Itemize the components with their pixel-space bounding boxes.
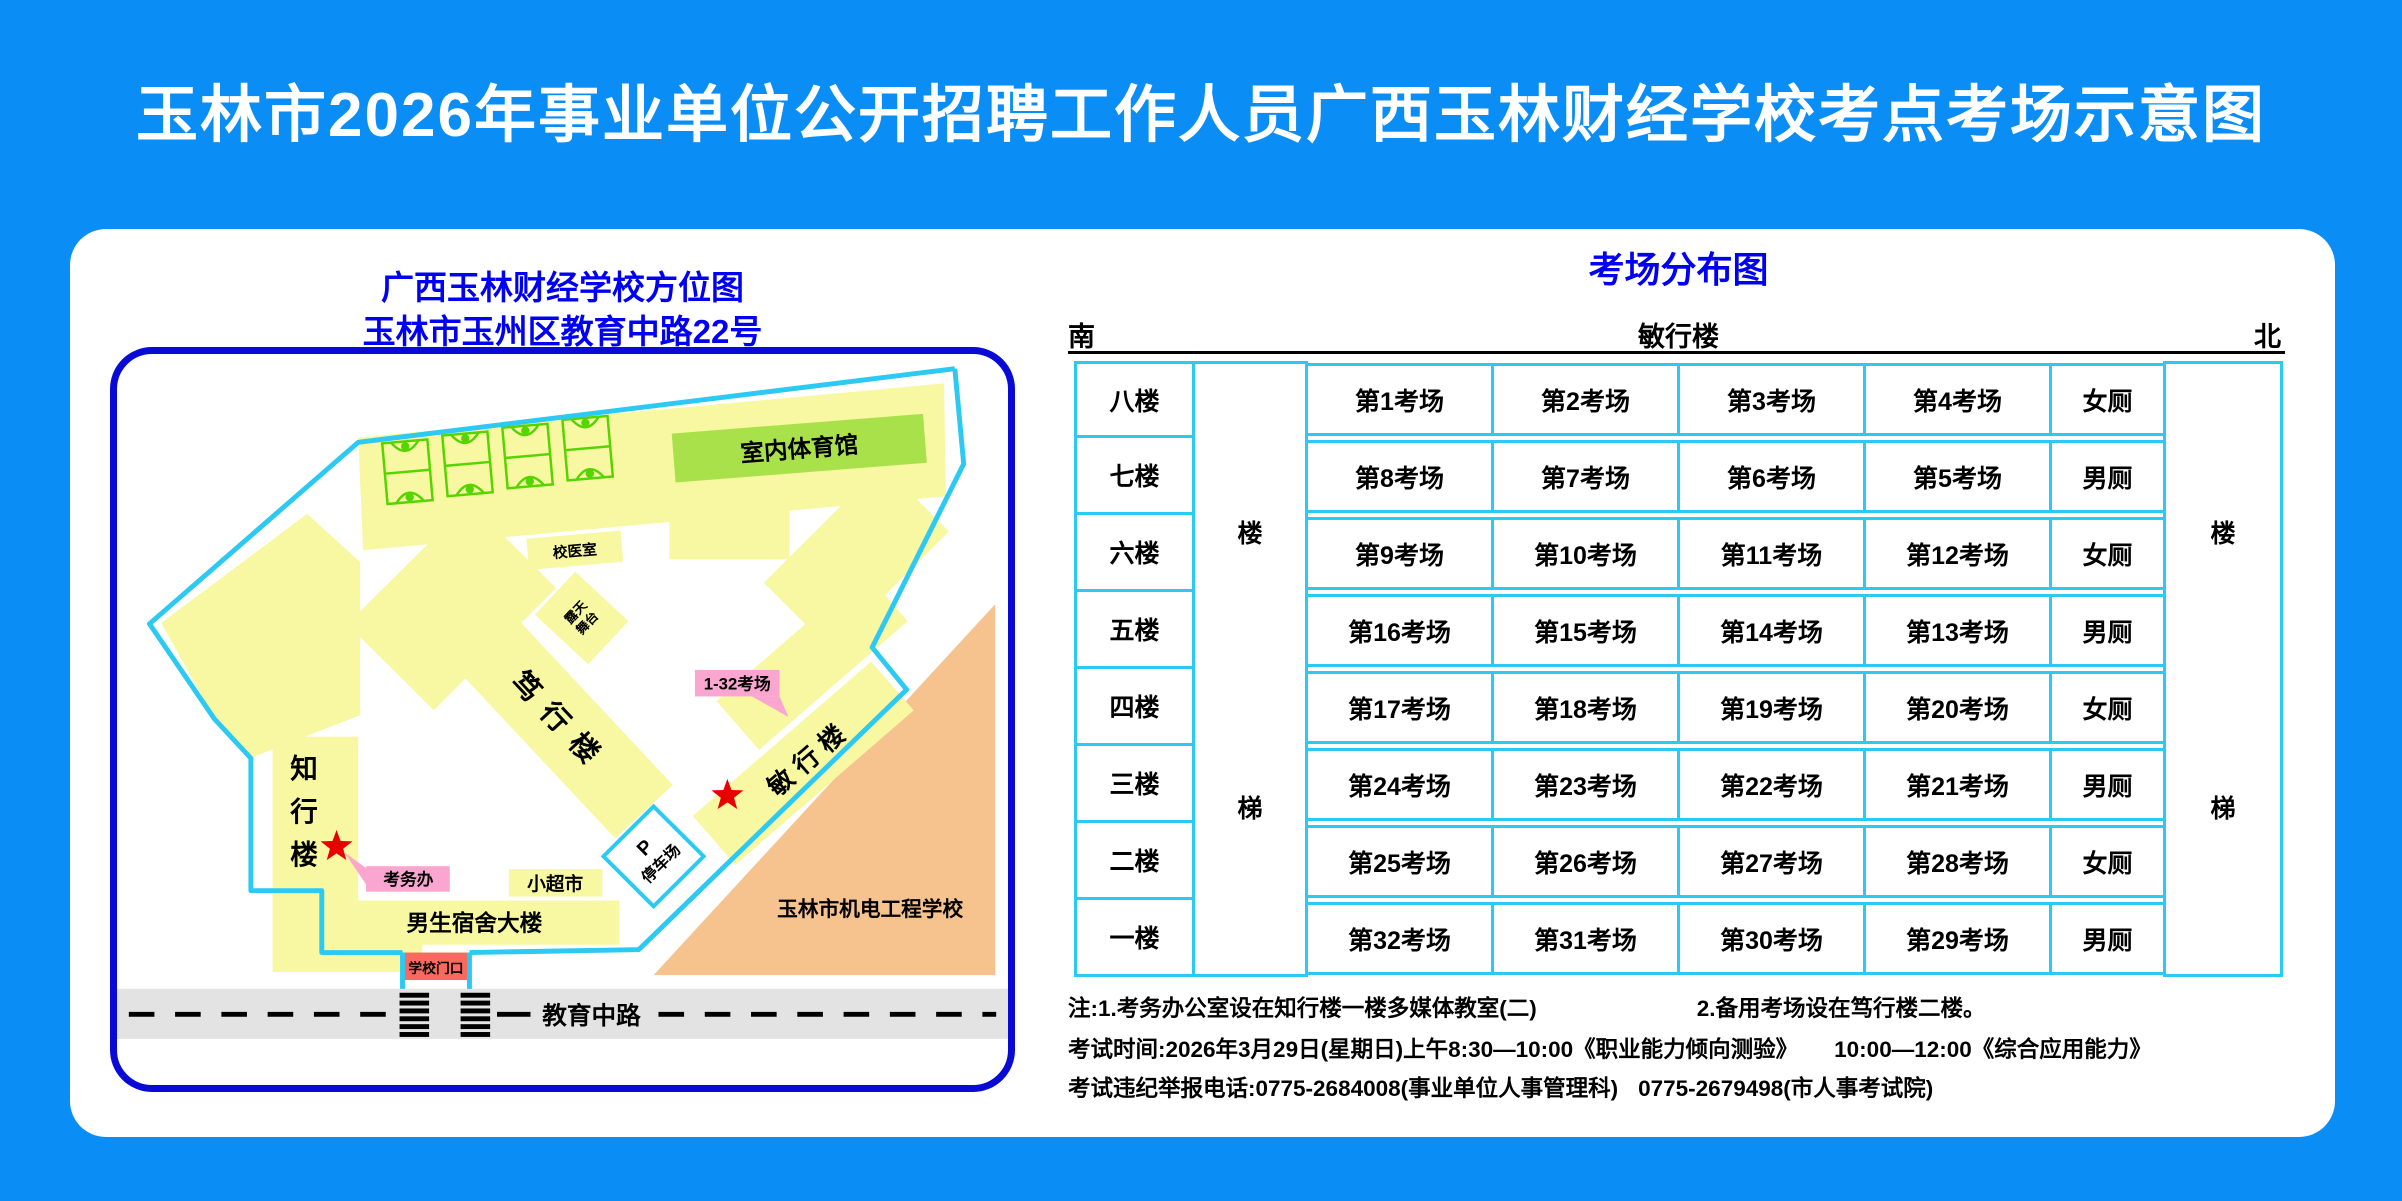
stairs-label-bottom: 梯 bbox=[2210, 789, 2235, 825]
duxing-building: 笃行楼 bbox=[447, 605, 672, 838]
map-title-line1: 广西玉林财经学校方位图 bbox=[110, 261, 1015, 309]
exam-room-cell: 第12考场 bbox=[1863, 517, 2052, 590]
exam-room-cell: 第22考场 bbox=[1677, 748, 1866, 821]
exam-room-cell: 第7考场 bbox=[1491, 440, 1680, 513]
toilet-cell: 男厕 bbox=[2049, 748, 2166, 821]
header-divider bbox=[1068, 351, 2285, 354]
exam-room-cell: 第4考场 bbox=[1863, 363, 2052, 436]
exam-room-cell: 第23考场 bbox=[1491, 748, 1680, 821]
stairs-label-top: 楼 bbox=[2210, 514, 2235, 550]
zhixing-label-1: 知 bbox=[290, 753, 318, 784]
exam-room-cell: 第18考场 bbox=[1491, 671, 1680, 744]
exam-room-cell: 第10考场 bbox=[1491, 517, 1680, 590]
exam-room-cell: 第14考场 bbox=[1677, 594, 1866, 667]
building-west bbox=[161, 514, 360, 758]
floor-label: 七楼 bbox=[1074, 438, 1192, 515]
building-mid bbox=[669, 495, 789, 559]
exam-room-cell: 第9考场 bbox=[1305, 517, 1494, 590]
clinic: 校医室 bbox=[526, 530, 623, 569]
floor-label: 六楼 bbox=[1074, 515, 1192, 592]
exam-room-cell: 第30考场 bbox=[1677, 902, 1866, 975]
exam-room-cell: 第28考场 bbox=[1863, 825, 2052, 898]
zhixing-label-3: 楼 bbox=[290, 839, 318, 870]
exam-room-cell: 第5考场 bbox=[1863, 440, 2052, 513]
stairs-label-top: 楼 bbox=[1237, 514, 1262, 550]
content-panel: 广西玉林财经学校方位图 玉林市玉州区教育中路22号 教育中路 玉林市机电工程学校 bbox=[70, 229, 2335, 1137]
stairs-label-bottom: 梯 bbox=[1237, 789, 1262, 825]
exam-room-cell: 第19考场 bbox=[1677, 671, 1866, 744]
toilet-cell: 女厕 bbox=[2049, 363, 2166, 436]
exam-room-cell: 第26考场 bbox=[1491, 825, 1680, 898]
note-1b: 2.备用考场设在笃行楼二楼。 bbox=[1697, 996, 1986, 1021]
campus-map-svg: 教育中路 玉林市机电工程学校 室内体育馆 bbox=[117, 354, 1008, 1085]
note-3b: 0775-2679498(市人事考试院) bbox=[1638, 1076, 1933, 1101]
stairs-column-right: 楼 梯 bbox=[2163, 361, 2283, 977]
floor-label: 一楼 bbox=[1074, 900, 1192, 977]
exam-room-cell: 第32考场 bbox=[1305, 902, 1494, 975]
exam-room-cell: 第11考场 bbox=[1677, 517, 1866, 590]
exam-room-cell: 第21考场 bbox=[1863, 748, 2052, 821]
distribution-table: 楼 梯 楼 梯 八楼 第1考场 第2考场 第3考场 第4考场 女厕 七楼 第8考… bbox=[1074, 361, 2283, 977]
exam-room-cell: 第24考场 bbox=[1305, 748, 1494, 821]
exam-room-cell: 第20考场 bbox=[1863, 671, 2052, 744]
exam-room-cell: 第27考场 bbox=[1677, 825, 1866, 898]
exam-room-cell: 第29考场 bbox=[1863, 902, 2052, 975]
note-1a: 注:1.考务办公室设在知行楼一楼多媒体教室(二) bbox=[1068, 996, 1537, 1021]
school-gate-label: 学校门口 bbox=[408, 960, 463, 976]
exam-room-cell: 第13考场 bbox=[1863, 594, 2052, 667]
toilet-cell: 女厕 bbox=[2049, 517, 2166, 590]
exam-room-cell: 第6考场 bbox=[1677, 440, 1866, 513]
exam-room-cell: 第16考场 bbox=[1305, 594, 1494, 667]
exam-room-cell: 第3考场 bbox=[1677, 363, 1866, 436]
dormitory-label: 男生宿舍大楼 bbox=[406, 910, 542, 936]
rooms-callout-label: 1-32考场 bbox=[704, 674, 771, 694]
note-2b: 10:00—12:00《综合应用能力》 bbox=[1834, 1037, 2152, 1062]
toilet-cell: 男厕 bbox=[2049, 594, 2166, 667]
exam-room-cell: 第25考场 bbox=[1305, 825, 1494, 898]
exam-room-cell: 第31考场 bbox=[1491, 902, 1680, 975]
note-line-1: 注:1.考务办公室设在知行楼一楼多媒体教室(二)2.备用考场设在笃行楼二楼。 bbox=[1068, 991, 1986, 1023]
supermarket-label: 小超市 bbox=[527, 874, 583, 895]
exam-room-cell: 第17考场 bbox=[1305, 671, 1494, 744]
stairs-column-left: 楼 梯 bbox=[1192, 361, 1308, 977]
campus-map: 教育中路 玉林市机电工程学校 室内体育馆 bbox=[110, 347, 1015, 1092]
note-line-3: 考试违纪举报电话:0775-2684008(事业单位人事管理科)0775-267… bbox=[1068, 1071, 1933, 1103]
floor-label: 三楼 bbox=[1074, 746, 1192, 823]
page-title: 玉林市2026年事业单位公开招聘工作人员广西玉林财经学校考点考场示意图 bbox=[0, 64, 2402, 154]
poster: { "title": "玉林市2026年事业单位公开招聘工作人员广西玉林财经学校… bbox=[0, 0, 2402, 1201]
compass-north: 北 bbox=[2254, 315, 2281, 354]
toilet-cell: 女厕 bbox=[2049, 671, 2166, 744]
toilet-cell: 男厕 bbox=[2049, 440, 2166, 513]
exam-office-callout: 考务办 bbox=[344, 852, 449, 891]
toilet-cell: 女厕 bbox=[2049, 825, 2166, 898]
floor-label: 八楼 bbox=[1074, 361, 1192, 438]
zhixing-label-2: 行 bbox=[289, 796, 318, 827]
exam-room-cell: 第2考场 bbox=[1491, 363, 1680, 436]
exam-office-label: 考务办 bbox=[382, 869, 433, 889]
neighbor-school-label: 玉林市机电工程学校 bbox=[777, 897, 963, 921]
floor-label: 五楼 bbox=[1074, 592, 1192, 669]
exam-room-cell: 第8考场 bbox=[1305, 440, 1494, 513]
toilet-cell: 男厕 bbox=[2049, 902, 2166, 975]
building-header: 敏行楼 bbox=[1074, 315, 2283, 354]
note-line-2: 考试时间:2026年3月29日(星期日)上午8:30—10:00《职业能力倾向测… bbox=[1068, 1032, 2152, 1064]
note-2a: 考试时间:2026年3月29日(星期日)上午8:30—10:00《职业能力倾向测… bbox=[1068, 1037, 1798, 1062]
floor-label: 二楼 bbox=[1074, 823, 1192, 900]
note-3a: 考试违纪举报电话:0775-2684008(事业单位人事管理科) bbox=[1068, 1076, 1618, 1101]
map-title-line2: 玉林市玉州区教育中路22号 bbox=[110, 305, 1015, 353]
exam-room-cell: 第15考场 bbox=[1491, 594, 1680, 667]
floor-label: 四楼 bbox=[1074, 669, 1192, 746]
distribution-title: 考场分布图 bbox=[1074, 241, 2283, 293]
exam-room-cell: 第1考场 bbox=[1305, 363, 1494, 436]
road-label: 教育中路 bbox=[542, 1001, 641, 1030]
